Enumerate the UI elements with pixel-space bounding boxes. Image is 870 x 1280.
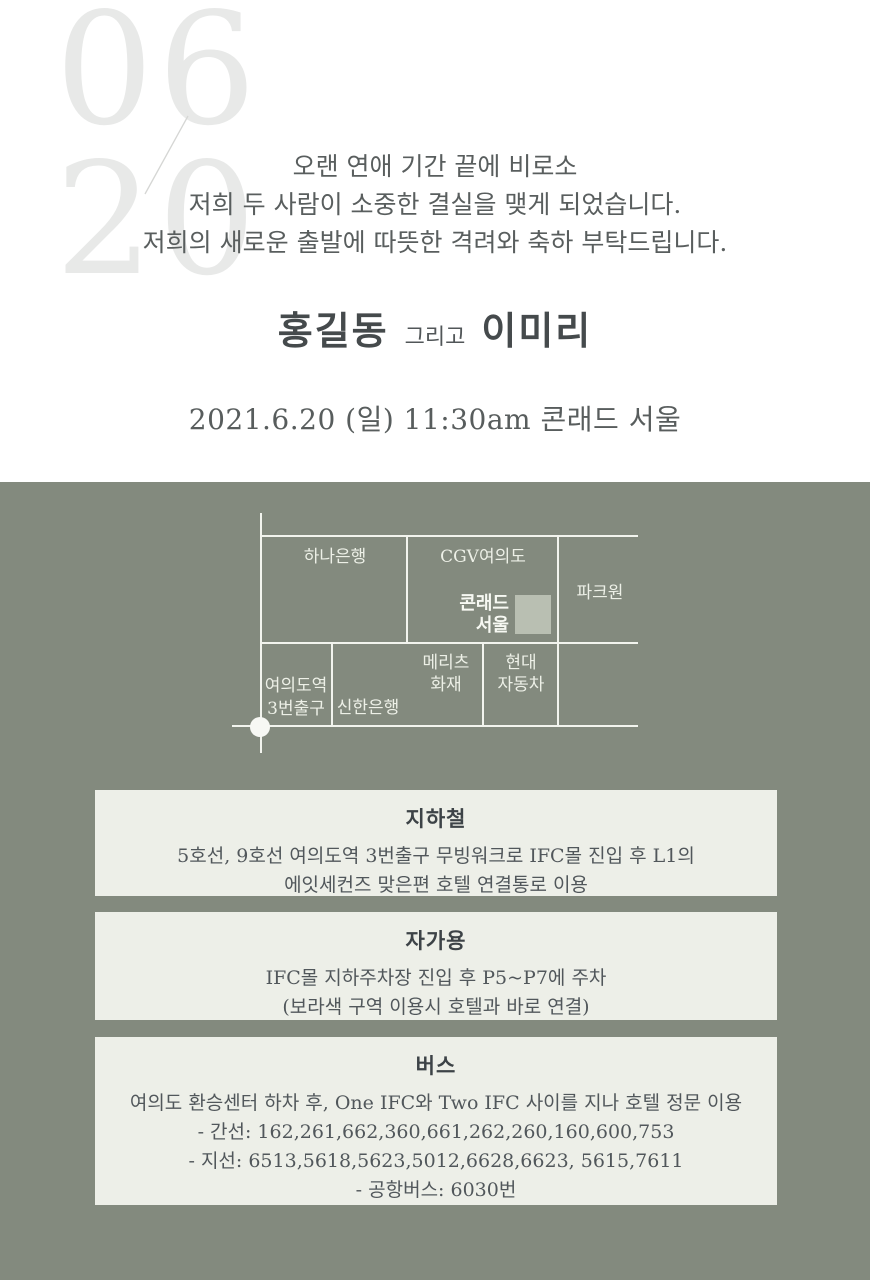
conrad-building-square xyxy=(515,595,551,634)
greeting-text: 오랜 연애 기간 끝에 비로소 저희 두 사람이 소중한 결실을 맺게 되었습니… xyxy=(0,148,870,262)
directions-bus-card: 버스 여의도 환승센터 하차 후, One IFC와 Two IFC 사이를 지… xyxy=(95,1037,777,1205)
map-label-hana-bank: 하나은행 xyxy=(304,547,367,567)
couple-names: 홍길동그리고이미리 xyxy=(0,300,870,355)
card-line: - 간선: 162,261,662,360,661,262,260,160,60… xyxy=(95,1118,777,1147)
map-label-hyundai: 자동차 xyxy=(498,675,545,695)
map-section: 하나은행 CGV여의도 파크원 콘래드 서울 메리츠 화재 현대 자동차 신한은… xyxy=(0,482,870,1280)
card-line: - 공항버스: 6030번 xyxy=(95,1176,777,1205)
greeting-line: 저희 두 사람이 소중한 결실을 맺게 되었습니다. xyxy=(0,186,870,224)
card-title-subway: 지하철 xyxy=(95,803,777,833)
hero-section: 06 20 오랜 연애 기간 끝에 비로소 저희 두 사람이 소중한 결실을 맺… xyxy=(0,0,870,482)
map-label-shinhan-bank: 신한은행 xyxy=(337,698,400,718)
wedding-invitation-page: 06 20 오랜 연애 기간 끝에 비로소 저희 두 사람이 소중한 결실을 맺… xyxy=(0,0,870,1280)
venue-map: 하나은행 CGV여의도 파크원 콘래드 서울 메리츠 화재 현대 자동차 신한은… xyxy=(0,482,870,782)
groom-name: 홍길동 xyxy=(278,308,389,353)
map-label-conrad: 서울 xyxy=(476,615,509,636)
map-label-cgv: CGV여의도 xyxy=(440,547,526,567)
map-label-parc1: 파크원 xyxy=(577,583,624,603)
map-label-station-exit: 여의도역 xyxy=(265,676,328,696)
map-label-meritz: 화재 xyxy=(430,675,461,695)
directions-subway-card: 지하철 5호선, 9호선 여의도역 3번출구 무빙워크로 IFC몰 진입 후 L… xyxy=(95,790,777,896)
card-title-car: 자가용 xyxy=(95,925,777,955)
card-line: 여의도 환승센터 하차 후, One IFC와 Two IFC 사이를 지나 호… xyxy=(95,1089,777,1118)
greeting-line: 저희의 새로운 출발에 따뜻한 격려와 축하 부탁드립니다. xyxy=(0,224,870,262)
card-line: 에잇세컨즈 맞은편 호텔 연결통로 이용 xyxy=(95,871,777,900)
event-datetime: 2021.6.20 (일) 11:30am 콘래드 서울 xyxy=(0,398,870,438)
map-label-meritz: 메리츠 xyxy=(423,653,470,673)
bride-name: 이미리 xyxy=(481,308,592,353)
subway-exit-marker xyxy=(250,717,270,737)
map-label-conrad: 콘래드 xyxy=(459,593,509,614)
card-line: 5호선, 9호선 여의도역 3번출구 무빙워크로 IFC몰 진입 후 L1의 xyxy=(95,842,777,871)
card-line: IFC몰 지하주차장 진입 후 P5~P7에 주차 xyxy=(95,964,777,993)
greeting-line: 오랜 연애 기간 끝에 비로소 xyxy=(0,148,870,186)
directions-car-card: 자가용 IFC몰 지하주차장 진입 후 P5~P7에 주차 (보라색 구역 이용… xyxy=(95,912,777,1020)
names-conjunction: 그리고 xyxy=(405,325,466,350)
card-line: - 지선: 6513,5618,5623,5012,6628,6623, 561… xyxy=(95,1147,777,1176)
card-line: (보라색 구역 이용시 호텔과 바로 연결) xyxy=(95,993,777,1022)
card-title-bus: 버스 xyxy=(95,1050,777,1080)
map-label-station-exit: 3번출구 xyxy=(267,699,325,719)
map-label-hyundai: 현대 xyxy=(505,653,536,673)
